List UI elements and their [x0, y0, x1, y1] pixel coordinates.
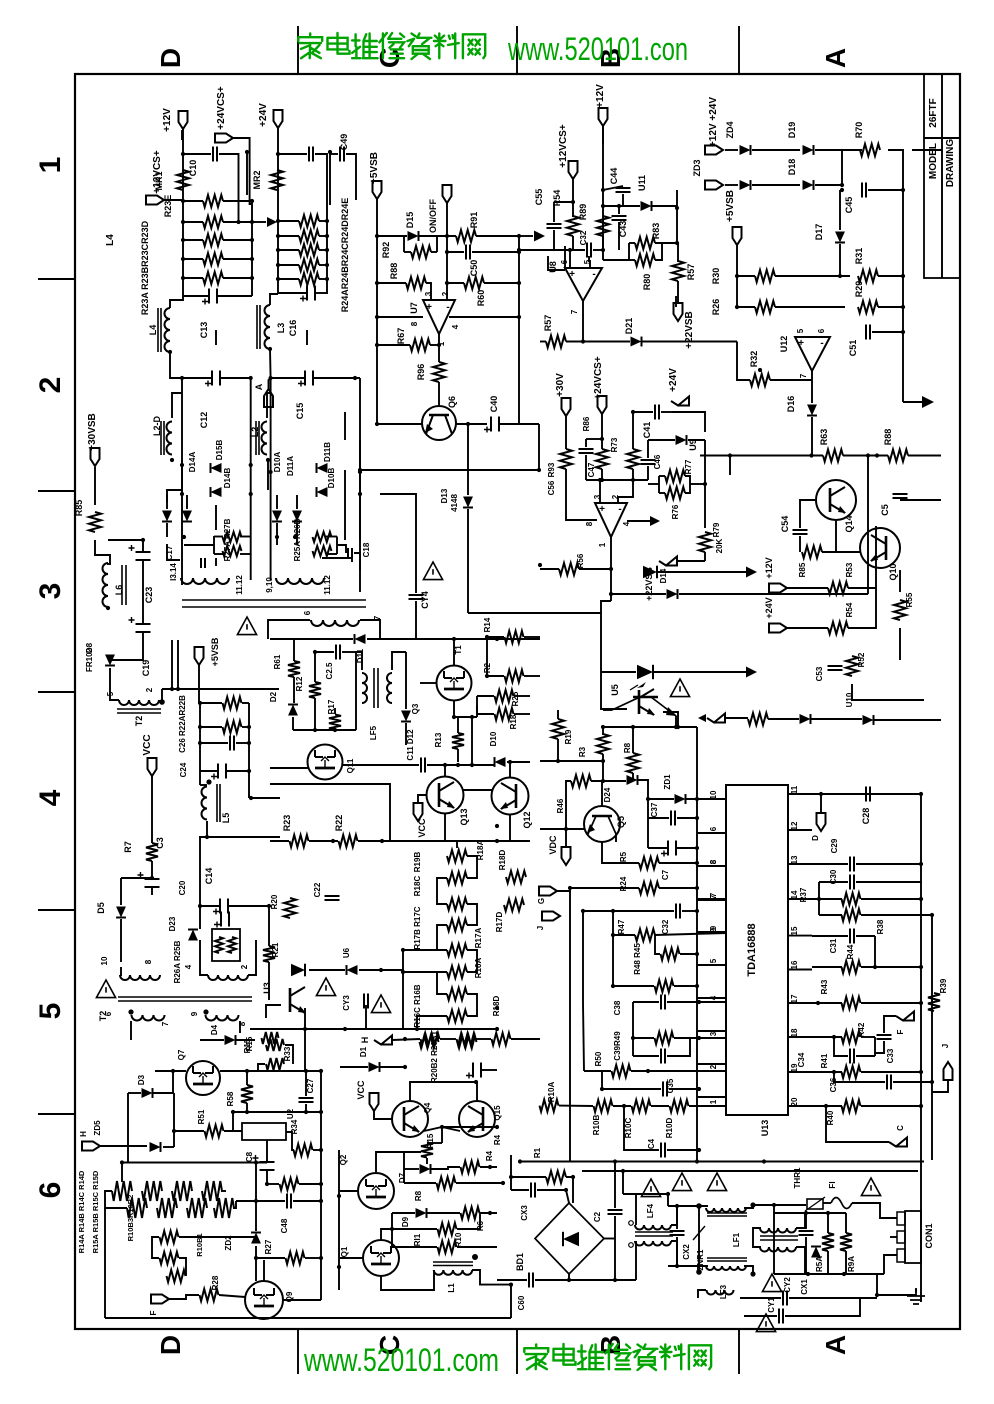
svg-text:R14: R14	[483, 617, 492, 632]
svg-text:R85: R85	[74, 500, 84, 517]
svg-text:R4: R4	[485, 1150, 494, 1161]
svg-text:R43: R43	[820, 979, 829, 994]
svg-text:C56: C56	[547, 480, 556, 495]
svg-text:D14: D14	[659, 568, 668, 583]
svg-text:R23A R23BR23CR23D: R23A R23BR23CR23D	[140, 220, 150, 315]
svg-text:9: 9	[709, 925, 718, 930]
svg-text:C51: C51	[848, 340, 858, 357]
svg-text:1: 1	[34, 157, 67, 174]
svg-text:CY4: CY4	[420, 591, 430, 609]
svg-text:R3: R3	[578, 746, 587, 757]
svg-text:C10: C10	[188, 160, 198, 177]
svg-text:R88: R88	[389, 263, 399, 280]
svg-text:4: 4	[34, 789, 67, 806]
svg-text:D3: D3	[137, 1074, 146, 1085]
svg-text:R85: R85	[798, 562, 807, 577]
svg-text:7: 7	[709, 892, 718, 897]
svg-text:-: -	[592, 269, 595, 280]
svg-text:D11: D11	[356, 648, 365, 663]
svg-text:U7: U7	[409, 302, 419, 314]
svg-text:R96: R96	[416, 364, 426, 381]
svg-text:R37: R37	[799, 887, 808, 902]
svg-text:ZD5: ZD5	[93, 1120, 102, 1136]
svg-text:C13: C13	[199, 322, 209, 339]
svg-text:6: 6	[709, 826, 718, 831]
svg-text:R19: R19	[564, 729, 573, 744]
svg-text:R55: R55	[905, 592, 914, 607]
svg-text:Q5: Q5	[616, 816, 626, 828]
svg-text:+: +	[599, 504, 605, 515]
svg-text:-: -	[446, 302, 449, 313]
svg-text:1: 1	[598, 542, 607, 547]
svg-text:R10B: R10B	[592, 1115, 601, 1136]
svg-text:C23: C23	[144, 587, 154, 604]
svg-text:R77: R77	[684, 459, 693, 474]
svg-text:ON/OFF: ON/OFF	[428, 199, 438, 233]
svg-text:D15: D15	[405, 212, 415, 229]
svg-text:5: 5	[709, 958, 718, 963]
svg-text:FR102: FR102	[85, 647, 94, 672]
svg-text:R20: R20	[270, 894, 279, 909]
svg-text:D11B: D11B	[323, 442, 332, 462]
svg-text:+22VSB: +22VSB	[684, 311, 695, 349]
svg-text:C2.5: C2.5	[325, 662, 334, 679]
svg-text:5: 5	[34, 1003, 67, 1020]
svg-text:C27: C27	[306, 1078, 315, 1093]
svg-text:-: -	[820, 338, 823, 349]
svg-text:R67: R67	[396, 328, 406, 345]
svg-text:R41: R41	[820, 1053, 829, 1068]
svg-text:C26 R22AR22B: C26 R22AR22B	[178, 695, 187, 753]
svg-text:R1: R1	[533, 1147, 542, 1158]
svg-text:F: F	[896, 1029, 905, 1034]
svg-text:C35: C35	[666, 1078, 675, 1093]
svg-text:R27: R27	[264, 1239, 273, 1254]
svg-text:R10D: R10D	[665, 1118, 674, 1139]
svg-text:C44: C44	[609, 168, 619, 185]
svg-text:FI: FI	[828, 1181, 837, 1188]
svg-text:C34: C34	[797, 1052, 806, 1067]
svg-text:16: 16	[790, 960, 799, 969]
svg-text:2: 2	[145, 687, 154, 692]
svg-text:L4: L4	[105, 234, 116, 246]
svg-text:C31: C31	[829, 938, 838, 953]
svg-text:Q12: Q12	[522, 811, 532, 828]
svg-text:C28: C28	[861, 808, 871, 825]
svg-text:CX1: CX1	[800, 1279, 809, 1295]
svg-text:D10: D10	[489, 731, 498, 746]
svg-text:R79: R79	[712, 522, 721, 537]
svg-text:R56: R56	[576, 553, 585, 568]
svg-text:C18: C18	[362, 542, 371, 557]
svg-text:R10: R10	[454, 1232, 463, 1247]
svg-text:R10C: R10C	[624, 1118, 633, 1139]
svg-text:R38: R38	[876, 919, 885, 934]
svg-text:R76: R76	[671, 504, 680, 519]
svg-text:+12V: +12V	[162, 108, 173, 132]
svg-text:D7: D7	[398, 1172, 407, 1183]
svg-text:11: 11	[790, 785, 799, 794]
svg-text:R30: R30	[711, 268, 721, 285]
svg-text:R20B2 R20B1: R20B2 R20B1	[430, 1030, 439, 1083]
svg-text:4: 4	[451, 324, 460, 329]
svg-text:Q6: Q6	[447, 396, 457, 408]
svg-text:C55: C55	[534, 189, 544, 206]
svg-text:6: 6	[817, 328, 826, 333]
svg-text:6: 6	[34, 1182, 67, 1199]
svg-text:C49: C49	[339, 134, 349, 151]
svg-text:C3: C3	[155, 837, 165, 849]
svg-text:VDC: VDC	[548, 835, 558, 855]
svg-text:VCC: VCC	[417, 818, 427, 838]
svg-text:CY3: CY3	[342, 995, 351, 1011]
svg-text:R73: R73	[610, 437, 619, 452]
svg-text:R5A: R5A	[815, 1256, 824, 1272]
svg-text:D1: D1	[359, 1046, 368, 1057]
svg-text:R19B: R19B	[413, 852, 422, 873]
svg-text:R25: R25	[511, 691, 520, 706]
svg-text:+12V: +12V	[764, 557, 774, 578]
svg-text:6: 6	[104, 1011, 113, 1016]
svg-text:7: 7	[161, 1021, 170, 1026]
svg-text:MR2: MR2	[252, 170, 262, 189]
svg-text:U12: U12	[779, 336, 789, 353]
svg-text:www.520101.con: www.520101.con	[507, 31, 688, 67]
svg-text:L3: L3	[276, 323, 286, 334]
svg-text:8: 8	[709, 859, 718, 864]
svg-text:R92: R92	[381, 242, 391, 259]
svg-text:D14B: D14B	[223, 468, 232, 489]
svg-text:ZD4: ZD4	[725, 121, 735, 138]
svg-text:R47: R47	[617, 919, 626, 934]
svg-text:CY1: CY1	[767, 1297, 776, 1313]
svg-text:D4: D4	[210, 1024, 219, 1035]
svg-text:R17A: R17A	[474, 928, 483, 949]
svg-text:U11: U11	[637, 175, 647, 191]
svg-text:R53: R53	[845, 562, 854, 577]
svg-text:LF1: LF1	[732, 1232, 741, 1247]
svg-text:L5: L5	[221, 813, 231, 824]
svg-text:DRAWING: DRAWING	[945, 139, 956, 188]
svg-text:D14A: D14A	[188, 452, 197, 473]
svg-text:11.12: 11.12	[235, 575, 244, 595]
svg-text:R26: R26	[711, 299, 721, 316]
svg-text:Q4: Q4	[423, 1102, 432, 1113]
svg-text:C15: C15	[295, 403, 305, 420]
svg-text:D21: D21	[624, 318, 634, 335]
svg-text:C11 D12: C11 D12	[406, 729, 415, 761]
svg-text:R60: R60	[476, 290, 486, 307]
svg-text:CY2: CY2	[783, 1277, 792, 1293]
svg-text:C16: C16	[288, 320, 298, 337]
svg-text:U6: U6	[342, 947, 351, 958]
svg-text:LF5: LF5	[369, 725, 378, 740]
svg-text:2: 2	[709, 1064, 718, 1069]
svg-text:A: A	[254, 383, 264, 390]
svg-text:C19: C19	[141, 660, 151, 677]
svg-text:R14A R14B R14C R14D: R14A R14B R14C R14D	[77, 1170, 86, 1253]
svg-text:D10B: D10B	[327, 468, 336, 489]
svg-text:R9A: R9A	[847, 1256, 856, 1272]
svg-text:8: 8	[585, 521, 594, 526]
svg-text:D16: D16	[786, 396, 796, 413]
svg-text:C48: C48	[280, 1218, 289, 1233]
svg-text:C: C	[896, 1125, 905, 1131]
svg-text:www.520101.com: www.520101.com	[303, 1342, 499, 1378]
svg-text:A: A	[820, 48, 851, 68]
svg-text:R17B R17C: R17B R17C	[413, 906, 422, 949]
svg-text:3: 3	[709, 1031, 718, 1036]
svg-text:R39: R39	[939, 978, 948, 993]
svg-text:7: 7	[799, 373, 808, 378]
svg-text:+12V: +12V	[595, 84, 606, 108]
svg-text:17: 17	[790, 994, 799, 1003]
svg-text:+30VSB: +30VSB	[87, 413, 98, 451]
svg-text:R17D: R17D	[495, 912, 504, 933]
svg-text:7: 7	[570, 309, 579, 314]
svg-text:R22: R22	[334, 815, 344, 832]
svg-text:C54: C54	[780, 516, 790, 533]
svg-text:D5: D5	[96, 902, 106, 914]
svg-text:R32: R32	[749, 351, 759, 368]
svg-text:CON1: CON1	[924, 1223, 934, 1248]
svg-text:C37: C37	[650, 802, 659, 817]
svg-text:VCC: VCC	[142, 734, 153, 755]
svg-text:+: +	[798, 338, 804, 349]
svg-text:U3: U3	[262, 982, 272, 994]
svg-text:+24V: +24V	[764, 597, 774, 618]
svg-text:+12VCS+: +12VCS+	[152, 150, 163, 194]
svg-text:G: G	[537, 898, 546, 904]
svg-text:R51: R51	[197, 1109, 206, 1124]
svg-text:R18A: R18A	[476, 840, 485, 861]
svg-text:R23E: R23E	[163, 195, 173, 218]
svg-text:18: 18	[790, 1028, 799, 1037]
svg-text:C50: C50	[469, 260, 479, 277]
svg-text:D17: D17	[814, 224, 824, 241]
svg-text:A: A	[820, 1335, 851, 1355]
svg-text:CX2: CX2	[682, 1244, 691, 1260]
svg-text:R24: R24	[619, 876, 628, 891]
svg-text:2: 2	[240, 964, 249, 969]
svg-text:+5VSB: +5VSB	[210, 637, 220, 666]
svg-text:C7: C7	[661, 869, 670, 880]
svg-text:13: 13	[790, 855, 799, 864]
svg-text:D: D	[155, 1335, 186, 1355]
svg-text:R42: R42	[857, 1022, 866, 1037]
svg-text:H: H	[360, 1037, 370, 1044]
svg-text:C32: C32	[661, 919, 670, 934]
svg-text:D23: D23	[168, 916, 177, 931]
svg-text:BD1: BD1	[515, 1253, 525, 1271]
svg-text:R54: R54	[845, 602, 854, 617]
svg-text:2: 2	[441, 291, 450, 296]
svg-text:3: 3	[34, 583, 67, 600]
svg-text:R18D: R18D	[492, 996, 501, 1017]
svg-text:C24: C24	[179, 762, 188, 777]
svg-text:R86: R86	[582, 416, 591, 431]
svg-text:R91: R91	[469, 212, 479, 229]
svg-text:R26A R25B: R26A R25B	[173, 940, 182, 983]
svg-text:T1: T1	[454, 645, 463, 655]
svg-text:D24: D24	[603, 787, 612, 802]
svg-text:R4: R4	[493, 1134, 502, 1145]
svg-text:+24VCS+: +24VCS+	[593, 356, 604, 400]
svg-text:6: 6	[303, 610, 312, 615]
svg-text:R15A R15B R15C R15D: R15A R15B R15C R15D	[91, 1170, 100, 1253]
svg-text:1: 1	[709, 1099, 718, 1104]
svg-text:8: 8	[410, 321, 419, 326]
svg-text:12: 12	[790, 821, 799, 830]
svg-text:CX3: CX3	[520, 1205, 529, 1221]
svg-text:D13: D13	[440, 488, 449, 503]
svg-text:R10A: R10A	[547, 1082, 556, 1103]
svg-text:R15: R15	[245, 1036, 254, 1051]
svg-text:2: 2	[34, 377, 67, 394]
svg-text:Q2: Q2	[339, 1154, 348, 1165]
svg-text:+12V +24V: +12V +24V	[708, 97, 719, 147]
svg-text:C20: C20	[178, 880, 187, 895]
svg-text:Q3: Q3	[411, 703, 420, 714]
svg-text:C32: C32	[579, 230, 588, 245]
svg-text:C14: C14	[204, 868, 214, 885]
svg-text:R57: R57	[686, 264, 696, 281]
svg-text:C47: C47	[587, 462, 596, 477]
svg-text:L4: L4	[148, 325, 158, 336]
svg-text:R40: R40	[826, 1110, 835, 1125]
svg-text:R5: R5	[619, 851, 628, 862]
svg-text:-: -	[618, 504, 621, 515]
svg-text:9: 9	[190, 1011, 199, 1016]
svg-text:D11A: D11A	[286, 456, 295, 476]
svg-text:D18: D18	[787, 159, 797, 176]
svg-text:R57: R57	[543, 315, 553, 332]
svg-text:4148: 4148	[450, 494, 459, 512]
svg-text:R29: R29	[854, 281, 864, 298]
svg-text:R18: R18	[509, 714, 518, 729]
svg-text:R58: R58	[226, 1091, 235, 1106]
svg-text:+5VSB: +5VSB	[369, 152, 380, 184]
svg-text:D10A: D10A	[273, 452, 282, 473]
svg-text:R8: R8	[414, 1190, 423, 1201]
svg-text:TDA16888: TDA16888	[746, 923, 758, 976]
svg-text:C39R49: C39R49	[613, 1031, 622, 1061]
svg-text:C22: C22	[313, 882, 322, 897]
svg-text:U8: U8	[548, 261, 558, 273]
svg-text:R61: R61	[273, 654, 282, 669]
svg-text:U5: U5	[610, 684, 620, 696]
svg-text:11.12: 11.12	[323, 575, 332, 595]
svg-text:VCC: VCC	[356, 1080, 366, 1100]
svg-text:C41: C41	[642, 422, 652, 439]
svg-text:10: 10	[709, 790, 718, 799]
svg-text:R31: R31	[854, 248, 864, 265]
svg-text:9,10: 9,10	[265, 577, 274, 593]
svg-text:4: 4	[622, 521, 631, 526]
svg-text:3: 3	[424, 291, 433, 296]
svg-text:C38: C38	[613, 1000, 622, 1015]
svg-text:+24VCS+: +24VCS+	[216, 86, 227, 130]
svg-text:Q13: Q13	[459, 808, 469, 825]
svg-text:C33: C33	[886, 1048, 895, 1063]
svg-text:Q7: Q7	[177, 1049, 186, 1060]
svg-text:R33: R33	[283, 1046, 292, 1061]
svg-text:C2: C2	[593, 1211, 602, 1222]
svg-text:R18D: R18D	[498, 850, 507, 871]
svg-text:D: D	[811, 835, 820, 841]
svg-text:R13: R13	[434, 732, 443, 747]
svg-text:D9: D9	[401, 1216, 410, 1227]
svg-text:R44: R44	[846, 944, 855, 959]
svg-text:C5: C5	[880, 504, 890, 516]
svg-text:R80: R80	[642, 274, 652, 291]
svg-text:R12: R12	[295, 676, 304, 691]
svg-text:R48 R45: R48 R45	[633, 943, 642, 975]
svg-text:F: F	[149, 1310, 158, 1315]
svg-text:Q10: Q10	[888, 563, 898, 580]
svg-text:+: +	[569, 269, 575, 280]
svg-text:R10B3R10B2: R10B3R10B2	[126, 1195, 135, 1242]
svg-text:R24AR24BR24CR24DR24E: R24AR24BR24CR24DR24E	[340, 198, 350, 313]
svg-text:THR1: THR1	[793, 1167, 802, 1188]
svg-text:+12VCS+: +12VCS+	[558, 124, 569, 168]
svg-text:R21: R21	[271, 942, 280, 957]
svg-text:+5VSB: +5VSB	[725, 190, 736, 222]
svg-text:Q14: Q14	[844, 515, 854, 532]
svg-text:C40: C40	[489, 396, 499, 413]
svg-text:C53: C53	[815, 666, 824, 681]
svg-text:R52: R52	[857, 652, 866, 667]
svg-text:D19: D19	[787, 122, 797, 139]
svg-text:4: 4	[709, 995, 718, 1000]
svg-text:D: D	[155, 48, 186, 68]
svg-text:MODEL: MODEL	[928, 143, 939, 179]
svg-text:4: 4	[184, 964, 193, 969]
svg-text:D15B: D15B	[215, 440, 224, 461]
svg-text:LF4: LF4	[646, 1203, 655, 1218]
svg-text:Q1: Q1	[340, 1246, 349, 1257]
svg-text:C12: C12	[199, 412, 209, 429]
svg-text:+: +	[426, 302, 432, 313]
svg-text:10: 10	[100, 956, 109, 965]
svg-text:5: 5	[796, 328, 805, 333]
svg-text:C8: C8	[245, 1151, 254, 1162]
svg-text:R83: R83	[651, 223, 661, 240]
svg-text:C46: C46	[653, 454, 662, 469]
svg-text:U9: U9	[688, 439, 698, 451]
svg-text:C4: C4	[647, 1138, 656, 1149]
svg-text:+24V: +24V	[668, 368, 679, 392]
svg-text:14: 14	[790, 890, 799, 899]
svg-text:C60: C60	[517, 1295, 526, 1310]
svg-text:J: J	[941, 1044, 950, 1048]
svg-text:R46: R46	[556, 798, 565, 813]
svg-text:R88: R88	[883, 429, 893, 446]
svg-text:R50: R50	[594, 1051, 603, 1066]
svg-text:I3.14: I3.14	[169, 563, 178, 581]
svg-text:20K: 20K	[715, 538, 724, 553]
svg-text:15: 15	[790, 926, 799, 935]
svg-text:C45: C45	[844, 197, 854, 214]
svg-text:RI1: RI1	[413, 1233, 422, 1246]
svg-text:R15: R15	[426, 1133, 435, 1148]
svg-text:20: 20	[790, 1097, 799, 1106]
svg-text:ZD2: ZD2	[224, 1235, 233, 1251]
svg-text:ZD3: ZD3	[692, 159, 702, 176]
svg-text:R8: R8	[623, 742, 632, 753]
svg-text:ZNR1: ZNR1	[696, 1249, 705, 1270]
svg-text:R7: R7	[123, 841, 133, 853]
